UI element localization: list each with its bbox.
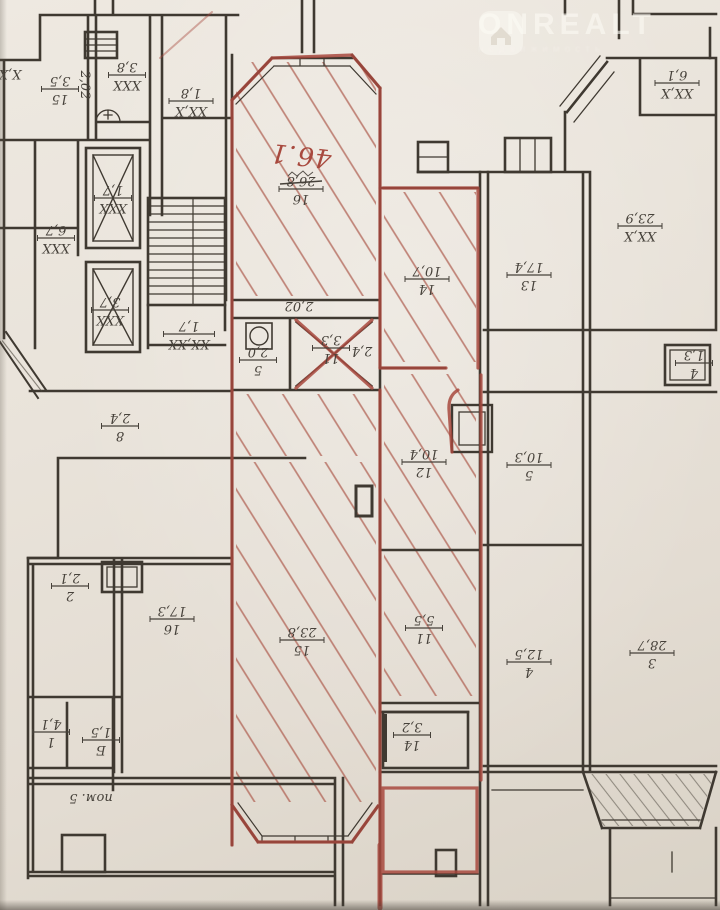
label-number: 16 — [293, 191, 310, 206]
room-label: 1,7XXX — [95, 182, 132, 215]
room-label: 3,515 — [42, 73, 79, 106]
room-label: пом. 5 — [69, 790, 113, 805]
room-label: 17,413 — [507, 259, 551, 292]
room-label: 1,8XX,X — [169, 85, 213, 118]
label-area: 1,7 — [178, 318, 199, 333]
label-number: 4 — [690, 365, 699, 380]
label-area: 2,02 — [285, 298, 315, 313]
label-area: 3,7 — [99, 294, 120, 309]
label-number: 15 — [52, 91, 69, 106]
room-label: 23,9XX,X — [618, 210, 662, 243]
label-area: 1,5 — [91, 724, 112, 739]
room-label: 1,7XX,XX — [164, 318, 215, 351]
label-number: 13 — [521, 277, 538, 292]
label-area: 5,5 — [414, 612, 435, 627]
room-label: 2,02 — [77, 70, 92, 100]
room-label: 2,4 — [352, 343, 374, 358]
label-number: 12 — [416, 464, 433, 479]
label-area: 2,4 — [110, 410, 132, 425]
room-label: 4,11 — [33, 716, 70, 749]
label-area: 3,2 — [402, 719, 423, 734]
room-label: 2,12 — [52, 570, 89, 603]
label-number: 11 — [416, 630, 433, 645]
label-number: XX,XX — [168, 336, 211, 351]
room-label: 2,48 — [102, 410, 139, 443]
label-area: 2,02 — [77, 70, 92, 100]
label-number: XX,X — [174, 103, 208, 118]
label-area: 26,8 — [287, 173, 317, 188]
label-number: XX,X — [623, 228, 657, 243]
room-label: 28,73 — [630, 637, 674, 670]
room-label: 6,1XX,X — [655, 67, 699, 100]
room-label: 17,316 — [150, 603, 194, 636]
label-area: 23,8 — [288, 624, 318, 639]
label-area: 12,5 — [515, 646, 544, 661]
label-number: Б — [96, 742, 107, 757]
label-area: 10,3 — [515, 449, 544, 464]
label-number: 8 — [116, 428, 124, 443]
label-number: 5 — [254, 362, 262, 377]
label-area: 3,8 — [117, 59, 138, 74]
label-area: 2,4 — [352, 343, 374, 358]
label-number: 14 — [419, 281, 436, 296]
label-number: 11 — [323, 350, 340, 365]
label-area: 6,7 — [45, 222, 66, 237]
room-label: 3,311 — [313, 332, 350, 365]
label-area: 4,1 — [41, 716, 63, 731]
label-area: 1,3 — [684, 347, 705, 362]
room-label: 3,8XXX — [109, 59, 146, 92]
label-area: пом. 5 — [69, 790, 113, 805]
label-number: 1 — [47, 734, 55, 749]
room-label: 1,34 — [676, 347, 713, 380]
label-area: 3,5 — [50, 73, 71, 88]
label-area: 3,3 — [321, 332, 342, 347]
label-area: 10,4 — [410, 446, 439, 461]
label-number: 5 — [525, 467, 533, 482]
label-number: XX,X — [660, 85, 694, 100]
label-number: 3 — [648, 655, 656, 670]
label-area: 2,0 — [248, 344, 270, 359]
room-label: 12,54 — [507, 646, 551, 679]
label-number: 4 — [525, 664, 534, 679]
label-area: 17,3 — [158, 603, 187, 618]
label-area: 28,7 — [637, 637, 668, 652]
room-label: 10,35 — [507, 449, 551, 482]
label-number: 15 — [294, 642, 311, 657]
room-label: 3,7XXX — [92, 294, 129, 327]
label-number: 16 — [164, 621, 181, 636]
label-area: 17,4 — [515, 259, 544, 274]
label-number: 14 — [404, 737, 421, 752]
photo-edge-shadow-bottom — [0, 900, 720, 910]
label-number: 2 — [66, 588, 75, 603]
photo-edge-shadow-left — [0, 0, 7, 910]
label-area: 2,1 — [60, 570, 82, 585]
label-number: XXX — [41, 240, 71, 255]
label-number: XXX — [98, 200, 128, 215]
label-area: 1,7 — [102, 182, 123, 197]
floorplan-drawing: 26,8162,053,3112,423,81510,71410,4125,51… — [0, 0, 720, 910]
label-area: 10,7 — [412, 263, 442, 278]
floorplan-photo: 26,8162,053,3112,423,81510,71410,4125,51… — [0, 0, 720, 910]
label-area: 6,1 — [667, 67, 688, 82]
room-label: 3,214 — [394, 719, 431, 752]
label-number: XXX — [112, 77, 142, 92]
room-label: 2,02 — [285, 298, 315, 313]
label-area: 23,9 — [626, 210, 656, 225]
label-number: XXX — [95, 312, 125, 327]
label-area: 1,8 — [181, 85, 202, 100]
